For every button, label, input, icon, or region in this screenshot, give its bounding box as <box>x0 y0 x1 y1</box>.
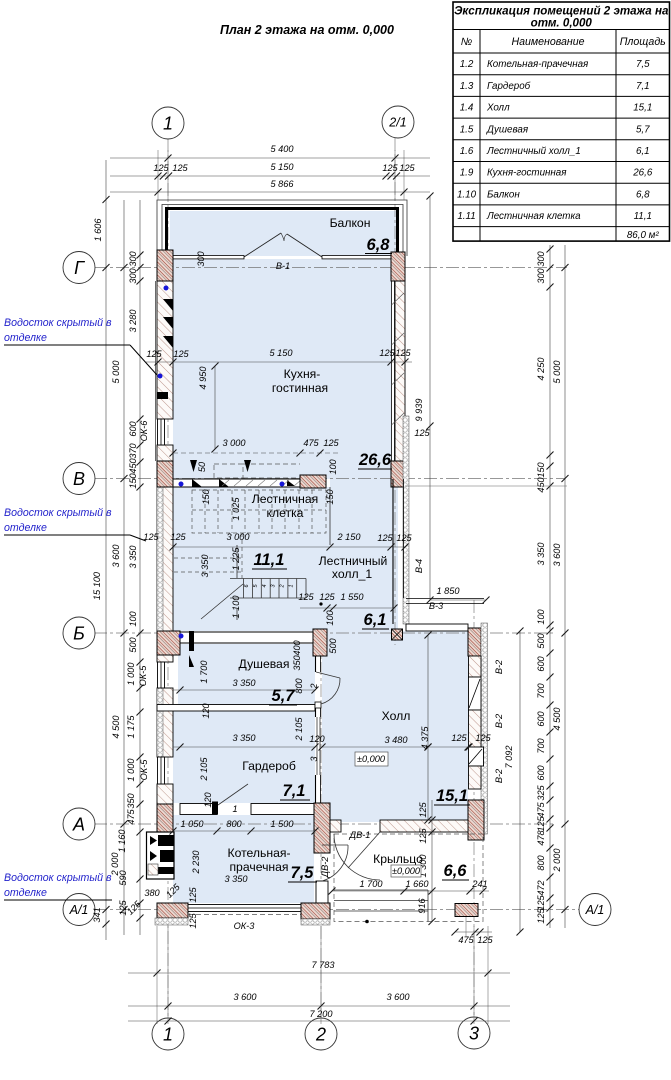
svg-text:5 150: 5 150 <box>270 348 294 358</box>
svg-text:9 939: 9 939 <box>414 399 424 422</box>
svg-text:А/1: А/1 <box>69 903 89 917</box>
svg-text:500: 500 <box>328 637 338 653</box>
svg-text:ОК-6: ОК-6 <box>139 420 149 442</box>
svg-text:холл_1: холл_1 <box>332 567 372 581</box>
svg-text:4 500: 4 500 <box>111 715 121 739</box>
svg-text:1 175: 1 175 <box>126 715 136 739</box>
svg-text:300: 300 <box>128 267 138 283</box>
svg-text:±0,000: ±0,000 <box>392 866 421 876</box>
svg-text:475: 475 <box>126 808 136 824</box>
svg-text:125: 125 <box>170 532 186 542</box>
svg-text:475: 475 <box>303 438 319 448</box>
svg-text:3 350: 3 350 <box>200 554 210 578</box>
svg-text:241: 241 <box>471 879 487 889</box>
svg-text:5,7: 5,7 <box>636 124 650 135</box>
svg-text:Кухня-: Кухня- <box>284 367 321 381</box>
svg-text:7 200: 7 200 <box>310 1009 334 1019</box>
svg-text:2: 2 <box>315 1024 326 1044</box>
svg-text:800: 800 <box>294 677 304 693</box>
svg-text:150: 150 <box>536 461 546 477</box>
svg-text:№: № <box>461 36 472 48</box>
svg-text:Балкон: Балкон <box>487 189 520 200</box>
svg-text:Душевая: Душевая <box>239 657 290 671</box>
svg-text:125: 125 <box>173 349 189 359</box>
svg-text:478: 478 <box>536 829 546 845</box>
svg-text:7,5: 7,5 <box>636 59 650 70</box>
svg-text:2: 2 <box>280 584 286 588</box>
svg-text:7,5: 7,5 <box>291 864 315 882</box>
svg-text:3 600: 3 600 <box>387 992 411 1002</box>
svg-text:±0,000: ±0,000 <box>357 754 386 764</box>
svg-text:1: 1 <box>232 804 237 814</box>
svg-text:1 606: 1 606 <box>93 218 103 242</box>
svg-text:Кухня-гостинная: Кухня-гостинная <box>487 168 567 179</box>
svg-text:4: 4 <box>262 584 268 587</box>
svg-text:150: 150 <box>128 472 138 488</box>
svg-text:1 700: 1 700 <box>360 879 384 889</box>
svg-text:Гардероб: Гардероб <box>487 81 531 92</box>
svg-text:100: 100 <box>328 458 338 474</box>
svg-text:325: 325 <box>536 784 546 800</box>
svg-text:гостинная: гостинная <box>272 381 328 395</box>
svg-text:1 000: 1 000 <box>126 662 136 686</box>
svg-text:125: 125 <box>395 348 411 358</box>
svg-text:150: 150 <box>201 488 211 504</box>
svg-text:150: 150 <box>325 488 335 504</box>
svg-text:Лестничный: Лестничный <box>319 554 388 568</box>
svg-text:4 250: 4 250 <box>536 357 546 381</box>
svg-text:7,1: 7,1 <box>283 782 306 800</box>
svg-text:ОК-3: ОК-3 <box>234 921 256 931</box>
svg-text:125: 125 <box>172 163 188 173</box>
svg-text:В-2: В-2 <box>494 714 504 728</box>
svg-text:300: 300 <box>128 250 138 266</box>
svg-text:Гардероб: Гардероб <box>242 759 296 773</box>
svg-text:1 660: 1 660 <box>406 879 430 889</box>
svg-text:5,7: 5,7 <box>272 687 296 705</box>
svg-text:26,6: 26,6 <box>632 168 653 179</box>
svg-text:15 100: 15 100 <box>92 571 102 600</box>
svg-text:125: 125 <box>536 894 546 910</box>
svg-text:300: 300 <box>196 250 206 266</box>
svg-text:11,1: 11,1 <box>254 551 285 569</box>
svg-text:125: 125 <box>377 533 393 543</box>
svg-text:125: 125 <box>188 886 198 902</box>
svg-text:5 000: 5 000 <box>111 360 121 384</box>
svg-text:1.6: 1.6 <box>460 146 474 157</box>
svg-text:450: 450 <box>128 457 138 473</box>
svg-text:125: 125 <box>319 592 335 602</box>
svg-text:125: 125 <box>298 592 314 602</box>
svg-text:125: 125 <box>536 907 546 923</box>
svg-text:1.9: 1.9 <box>460 168 474 179</box>
svg-text:125: 125 <box>188 912 198 928</box>
svg-text:15,1: 15,1 <box>436 787 468 805</box>
svg-text:3 350: 3 350 <box>128 545 138 569</box>
svg-text:450: 450 <box>536 476 546 492</box>
svg-text:2: 2 <box>309 683 319 689</box>
svg-text:600: 600 <box>536 764 546 780</box>
svg-text:2 000: 2 000 <box>552 848 562 873</box>
svg-text:300: 300 <box>536 267 546 283</box>
svg-text:800: 800 <box>226 819 242 829</box>
svg-text:370: 370 <box>128 442 138 458</box>
svg-text:125: 125 <box>379 348 395 358</box>
svg-text:15,1: 15,1 <box>633 103 652 114</box>
svg-text:1.10: 1.10 <box>457 189 477 200</box>
svg-text:3 350: 3 350 <box>233 733 257 743</box>
svg-text:916: 916 <box>417 897 427 913</box>
svg-text:5 150: 5 150 <box>271 162 295 172</box>
svg-text:3 480: 3 480 <box>385 735 409 745</box>
svg-text:5 000: 5 000 <box>552 360 562 384</box>
svg-text:120: 120 <box>203 791 213 807</box>
svg-text:1 500: 1 500 <box>271 819 295 829</box>
svg-text:350: 350 <box>126 792 136 808</box>
svg-text:3 350: 3 350 <box>225 874 249 884</box>
svg-text:Б: Б <box>73 623 85 643</box>
svg-text:А: А <box>72 814 85 834</box>
svg-text:700: 700 <box>536 682 546 698</box>
svg-text:Площадь: Площадь <box>620 36 666 48</box>
svg-text:6,6: 6,6 <box>444 862 468 880</box>
svg-text:В: В <box>73 469 85 489</box>
svg-text:3 350: 3 350 <box>233 678 257 688</box>
svg-text:2 150: 2 150 <box>337 532 362 542</box>
svg-text:Котельная-: Котельная- <box>227 846 290 860</box>
svg-text:В-3: В-3 <box>429 601 444 611</box>
svg-text:125: 125 <box>382 163 398 173</box>
svg-text:1 700: 1 700 <box>199 660 209 684</box>
svg-text:Душевая: Душевая <box>486 124 529 135</box>
svg-text:1: 1 <box>163 1024 173 1044</box>
svg-text:1.4: 1.4 <box>460 103 474 114</box>
svg-text:Лестничная: Лестничная <box>252 492 318 506</box>
svg-text:В-2: В-2 <box>494 660 504 674</box>
svg-text:Лестничный холл_1: Лестничный холл_1 <box>486 146 581 157</box>
svg-text:ДВ-1: ДВ-1 <box>349 830 371 840</box>
svg-text:1: 1 <box>163 113 173 133</box>
svg-text:Г: Г <box>74 258 85 278</box>
svg-text:600: 600 <box>536 655 546 671</box>
svg-text:600: 600 <box>128 420 138 436</box>
svg-text:Котельная-прачечная: Котельная-прачечная <box>487 59 589 70</box>
svg-text:125: 125 <box>418 801 428 817</box>
svg-text:300: 300 <box>536 250 546 266</box>
svg-text:1: 1 <box>289 584 295 587</box>
svg-text:3 000: 3 000 <box>227 532 251 542</box>
svg-text:6,1: 6,1 <box>364 611 387 629</box>
svg-text:1 000: 1 000 <box>126 758 136 782</box>
svg-text:400: 400 <box>292 639 302 655</box>
svg-text:125: 125 <box>475 733 491 743</box>
svg-text:350: 350 <box>292 654 302 670</box>
svg-text:3: 3 <box>309 756 319 762</box>
svg-text:6,8: 6,8 <box>636 189 650 200</box>
svg-text:Водосток скрытый в: Водосток скрытый в <box>4 507 112 519</box>
svg-text:125: 125 <box>396 533 412 543</box>
svg-text:1 100: 1 100 <box>231 595 241 619</box>
svg-text:Холл: Холл <box>486 103 510 114</box>
svg-text:План 2 этажа на отм. 0,000: План 2 этажа на отм. 0,000 <box>220 23 394 37</box>
svg-text:500: 500 <box>536 632 546 648</box>
svg-text:3 600: 3 600 <box>552 543 562 567</box>
svg-text:125: 125 <box>536 815 546 831</box>
svg-text:1.2: 1.2 <box>460 59 474 70</box>
svg-text:Холл: Холл <box>382 709 411 723</box>
svg-text:Водосток скрытый в: Водосток скрытый в <box>4 317 112 329</box>
svg-text:1 850: 1 850 <box>437 586 461 596</box>
svg-text:1 050: 1 050 <box>181 819 205 829</box>
svg-text:Наименование: Наименование <box>511 36 584 48</box>
svg-text:3 600: 3 600 <box>234 992 258 1002</box>
svg-text:7 783: 7 783 <box>312 960 336 970</box>
svg-text:125: 125 <box>451 733 467 743</box>
svg-text:4 375: 4 375 <box>420 726 430 750</box>
svg-text:Крыльцо: Крыльцо <box>373 852 423 866</box>
svg-text:ОК-5: ОК-5 <box>139 759 149 781</box>
svg-text:100: 100 <box>325 609 335 625</box>
svg-text:125: 125 <box>418 827 428 843</box>
svg-text:2 105: 2 105 <box>199 757 209 782</box>
svg-text:125: 125 <box>399 163 415 173</box>
svg-text:125: 125 <box>323 438 339 448</box>
svg-text:1 025: 1 025 <box>231 497 241 521</box>
svg-text:1.5: 1.5 <box>460 124 474 135</box>
svg-text:120: 120 <box>309 734 325 744</box>
svg-text:отделке: отделке <box>4 887 47 899</box>
svg-text:В-1: В-1 <box>276 261 290 271</box>
svg-text:125: 125 <box>414 428 430 438</box>
svg-text:50: 50 <box>197 461 207 472</box>
svg-text:3 600: 3 600 <box>111 544 121 568</box>
svg-text:1 225: 1 225 <box>231 547 241 571</box>
svg-text:3 350: 3 350 <box>536 542 546 566</box>
svg-text:В-4: В-4 <box>414 559 424 573</box>
svg-text:Водосток скрытый в: Водосток скрытый в <box>4 872 112 884</box>
svg-text:ДВ-2: ДВ-2 <box>320 857 330 879</box>
svg-text:4 950: 4 950 <box>198 366 208 390</box>
svg-text:Лестничная клетка: Лестничная клетка <box>486 211 581 222</box>
svg-text:1.11: 1.11 <box>457 211 475 222</box>
svg-text:1 550: 1 550 <box>341 592 365 602</box>
svg-text:100: 100 <box>128 610 138 626</box>
svg-text:отм. 0,000: отм. 0,000 <box>531 17 593 30</box>
svg-text:3 280: 3 280 <box>128 309 138 333</box>
svg-text:А/1: А/1 <box>585 903 605 917</box>
svg-text:7,1: 7,1 <box>636 81 650 92</box>
svg-text:125: 125 <box>477 935 493 945</box>
svg-text:86,0 м²: 86,0 м² <box>627 230 660 241</box>
svg-text:3: 3 <box>469 1023 479 1043</box>
svg-text:Балкон: Балкон <box>330 216 371 230</box>
svg-text:отделке: отделке <box>4 522 47 534</box>
svg-text:120: 120 <box>201 702 211 718</box>
svg-text:6,8: 6,8 <box>367 236 391 254</box>
svg-text:клетка: клетка <box>267 506 304 520</box>
svg-text:5 866: 5 866 <box>271 179 295 189</box>
svg-text:590: 590 <box>118 869 128 885</box>
svg-text:475: 475 <box>458 935 474 945</box>
svg-text:100: 100 <box>536 608 546 624</box>
svg-text:5 400: 5 400 <box>271 144 295 154</box>
svg-text:700: 700 <box>536 737 546 753</box>
svg-text:1 160: 1 160 <box>117 829 127 853</box>
svg-text:600: 600 <box>536 710 546 726</box>
svg-text:7 092: 7 092 <box>504 746 514 769</box>
svg-text:6,1: 6,1 <box>636 146 650 157</box>
svg-text:11,1: 11,1 <box>634 211 652 222</box>
svg-text:3 000: 3 000 <box>223 438 247 448</box>
svg-text:472: 472 <box>536 880 546 895</box>
svg-text:380: 380 <box>144 888 160 898</box>
svg-text:2 105: 2 105 <box>294 717 304 742</box>
svg-text:475: 475 <box>536 801 546 817</box>
svg-text:2 230: 2 230 <box>191 850 201 875</box>
svg-text:В-2: В-2 <box>494 769 504 783</box>
svg-text:125: 125 <box>146 349 162 359</box>
svg-text:ОК-5: ОК-5 <box>138 665 148 687</box>
svg-text:2/1: 2/1 <box>388 116 406 130</box>
svg-text:26,6: 26,6 <box>358 451 392 469</box>
svg-text:341: 341 <box>92 907 102 922</box>
svg-text:1.3: 1.3 <box>460 81 474 92</box>
svg-text:800: 800 <box>536 854 546 870</box>
svg-text:500: 500 <box>128 636 138 652</box>
svg-text:прачечная: прачечная <box>229 860 288 874</box>
svg-text:4 500: 4 500 <box>552 707 562 731</box>
svg-text:отделке: отделке <box>4 332 47 344</box>
svg-text:125: 125 <box>153 163 169 173</box>
